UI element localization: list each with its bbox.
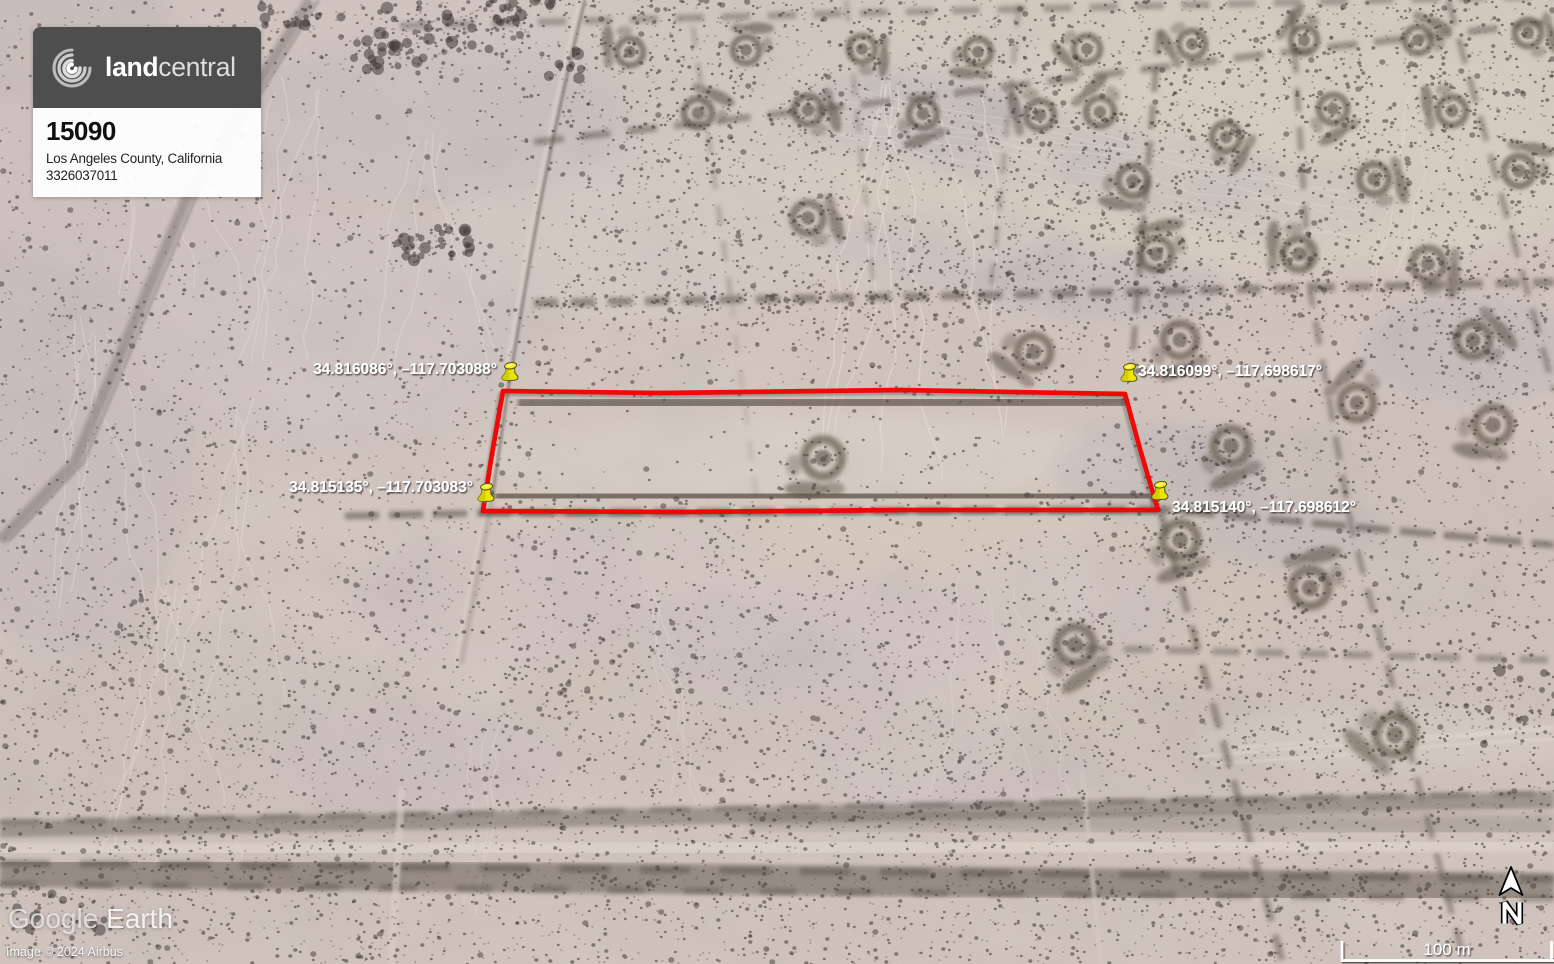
svg-text:34.815135°, –117.703083°: 34.815135°, –117.703083° (289, 479, 473, 496)
svg-text:34.816086°, –117.703088°: 34.816086°, –117.703088° (313, 361, 497, 378)
svg-text:34.816099°, –117.698617°: 34.816099°, –117.698617° (1138, 363, 1322, 380)
svg-text:100 m: 100 m (1423, 940, 1470, 959)
svg-text:34.815140°, –117.698612°: 34.815140°, –117.698612° (1172, 499, 1356, 516)
